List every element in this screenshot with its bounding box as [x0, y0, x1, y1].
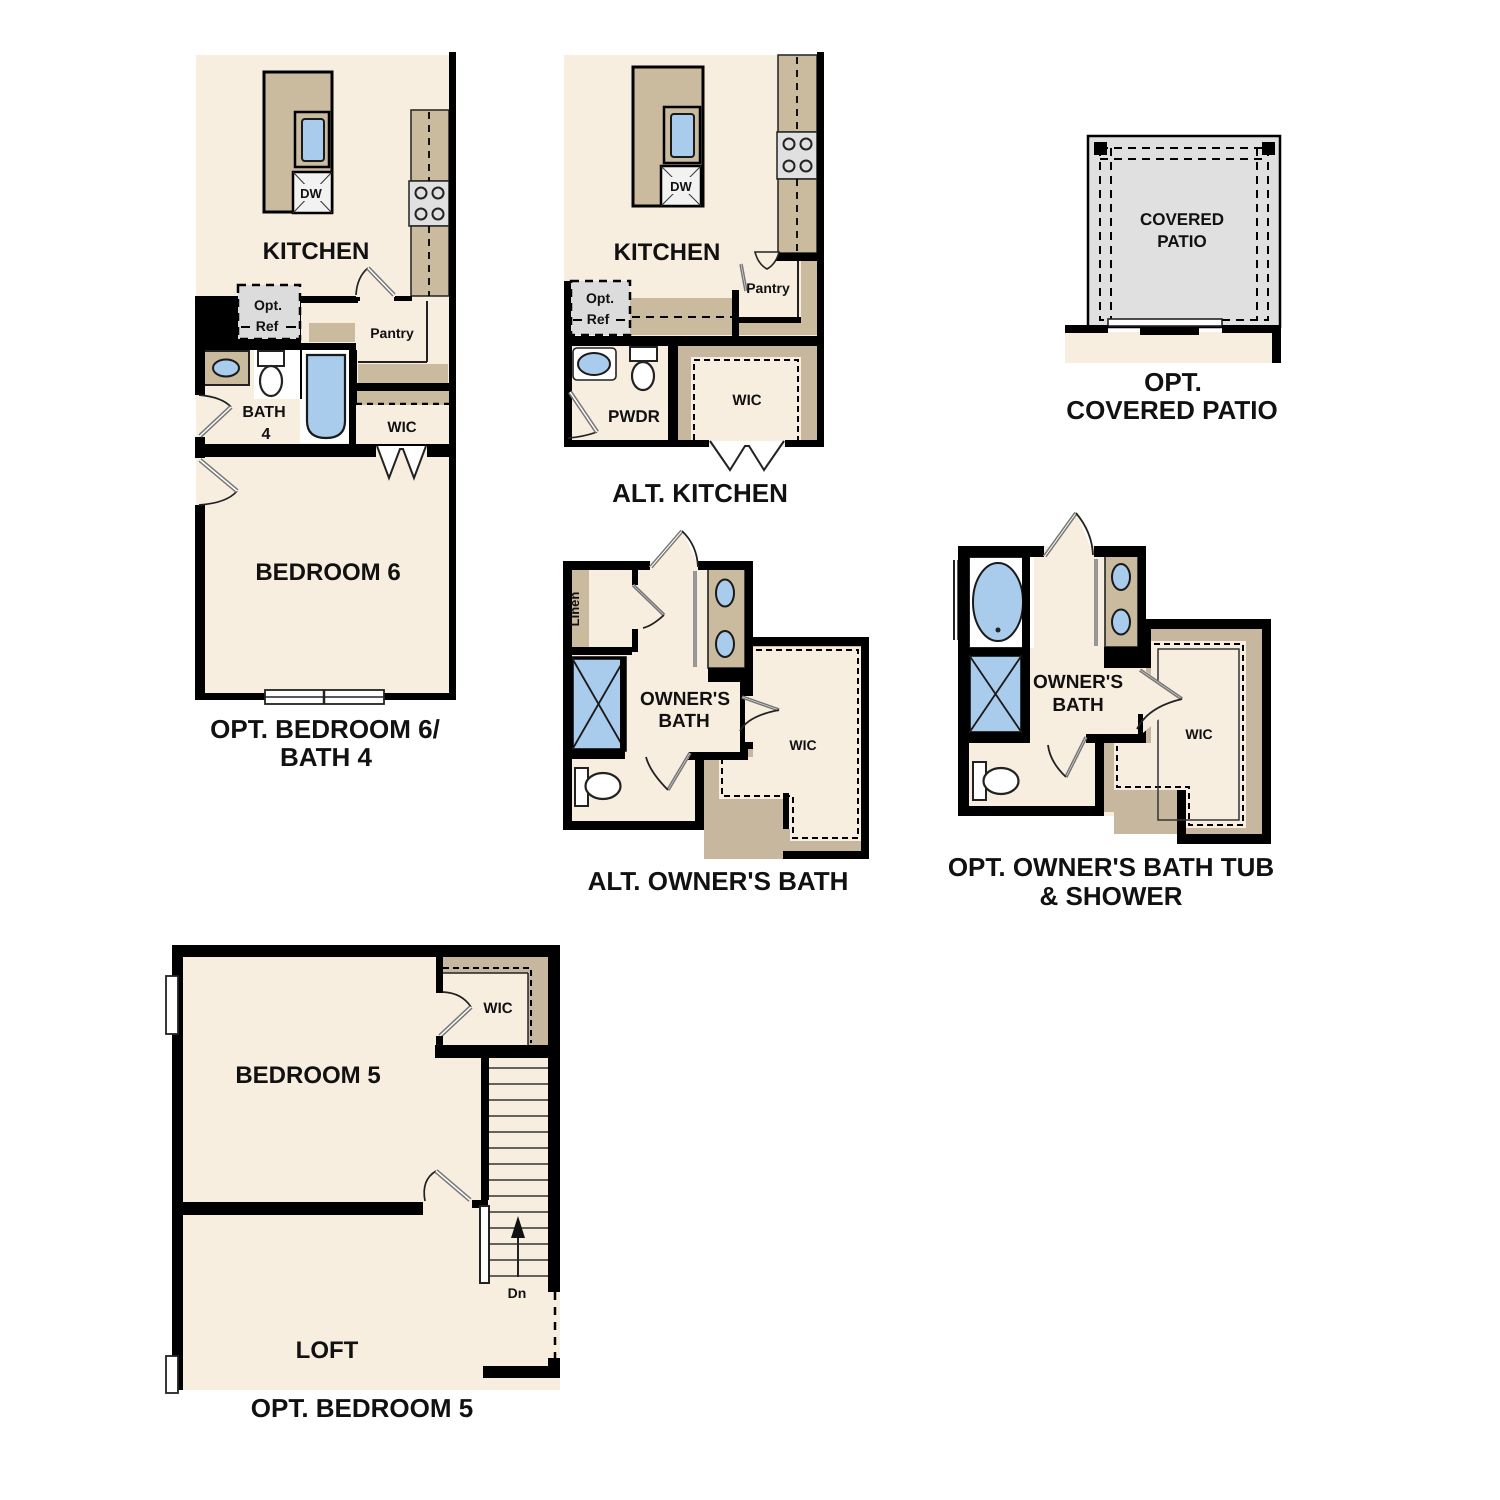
svg-text:4: 4	[262, 426, 271, 443]
svg-text:DW: DW	[300, 186, 322, 201]
svg-text:KITCHEN: KITCHEN	[614, 239, 721, 266]
svg-text:BEDROOM 6: BEDROOM 6	[255, 559, 400, 586]
svg-text:KITCHEN: KITCHEN	[263, 238, 370, 265]
svg-text:Opt.: Opt.	[254, 297, 282, 313]
svg-text:DW: DW	[670, 179, 692, 194]
svg-text:BEDROOM 5: BEDROOM 5	[235, 1062, 380, 1089]
svg-text:Dn: Dn	[508, 1285, 527, 1301]
svg-text:PWDR: PWDR	[608, 407, 660, 426]
svg-text:Pantry: Pantry	[370, 325, 414, 341]
svg-text:ALT. KITCHEN: ALT. KITCHEN	[612, 478, 788, 508]
svg-text:Linen: Linen	[567, 592, 582, 627]
svg-text:OWNER'S: OWNER'S	[1033, 672, 1123, 693]
svg-text:WIC: WIC	[483, 1000, 512, 1017]
svg-text:BATH 4: BATH 4	[280, 742, 373, 772]
svg-text:ALT. OWNER'S BATH: ALT. OWNER'S BATH	[588, 866, 849, 896]
svg-text:WIC: WIC	[732, 392, 761, 409]
svg-text:BATH: BATH	[242, 404, 285, 421]
svg-text:Opt.: Opt.	[586, 290, 614, 306]
svg-text:WIC: WIC	[1185, 726, 1212, 742]
svg-text:OWNER'S: OWNER'S	[640, 689, 730, 710]
svg-text:& SHOWER: & SHOWER	[1040, 881, 1183, 911]
svg-text:BATH: BATH	[658, 711, 709, 732]
svg-text:PATIO: PATIO	[1157, 232, 1206, 251]
svg-text:Ref: Ref	[587, 311, 610, 327]
svg-text:WIC: WIC	[789, 737, 816, 753]
svg-text:Ref: Ref	[256, 318, 279, 334]
svg-text:Pantry: Pantry	[746, 280, 790, 296]
svg-text:OPT.: OPT.	[1144, 367, 1202, 397]
svg-text:WIC: WIC	[387, 419, 416, 436]
svg-text:COVERED: COVERED	[1140, 210, 1224, 229]
svg-text:OPT. BEDROOM 6/: OPT. BEDROOM 6/	[210, 714, 440, 744]
svg-text:COVERED PATIO: COVERED PATIO	[1066, 395, 1277, 425]
svg-text:BATH: BATH	[1052, 695, 1103, 716]
svg-text:OPT. OWNER'S BATH TUB: OPT. OWNER'S BATH TUB	[948, 852, 1274, 882]
svg-text:OPT. BEDROOM 5: OPT. BEDROOM 5	[251, 1393, 473, 1423]
svg-text:LOFT: LOFT	[296, 1337, 359, 1364]
